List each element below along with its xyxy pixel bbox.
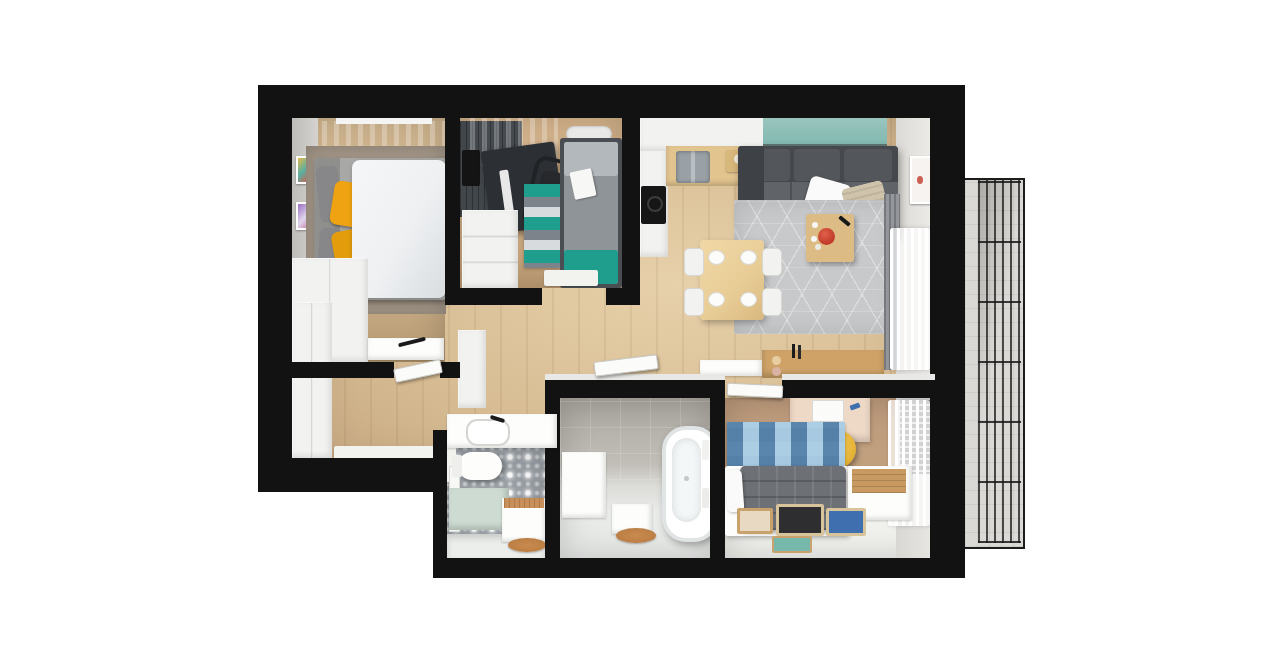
- wall-bath-top-left: [545, 378, 725, 398]
- plate-4: [740, 292, 757, 307]
- office-door-mat: [544, 270, 598, 286]
- wall-right: [930, 85, 965, 578]
- office-speaker: [462, 150, 480, 186]
- kids-white-pillow: [725, 469, 745, 512]
- hall-tall-cabinet: [458, 330, 486, 408]
- wood-round-mat: [616, 528, 656, 543]
- sideboard-decor-reeds: [792, 344, 795, 358]
- wall-bedroom-bottom-stub: [440, 362, 460, 378]
- living-sheer-curtain: [890, 228, 930, 370]
- wall-hall-bottom: [258, 458, 447, 492]
- office-dresser: [462, 210, 518, 288]
- hall-wardrobe: [292, 302, 332, 458]
- wall-bath-top-right: [782, 378, 935, 398]
- wall-top: [258, 85, 965, 118]
- wall-left: [258, 85, 292, 492]
- wall-cap-bath-right: [782, 374, 935, 380]
- dining-chair-1: [684, 248, 704, 276]
- dining-chair-4: [762, 288, 782, 316]
- teal-glass-panel: [763, 115, 887, 150]
- red-bowl: [818, 228, 835, 245]
- laptop: [812, 400, 844, 422]
- plate-2: [740, 250, 757, 265]
- wc-vanity-sink: [466, 419, 510, 446]
- toilet-tank: [452, 455, 462, 477]
- wall-office-kitchen-divider: [622, 115, 640, 305]
- wall-bedroom-office-divider: [445, 115, 460, 305]
- toy-box-wood-inner: [852, 469, 906, 493]
- sofa-cushion-3: [844, 149, 892, 181]
- white-cups: [812, 222, 818, 228]
- wall-office-bottom-right: [606, 288, 640, 305]
- plate-3: [708, 292, 725, 307]
- wall-cap-bath-left: [545, 374, 725, 380]
- wood-lid-basket: [508, 538, 546, 552]
- wall-hung-toilet: [458, 452, 502, 480]
- picture-art-mark: [917, 176, 923, 184]
- play-mat-4: [772, 536, 812, 553]
- kitchen-sink: [676, 151, 710, 183]
- wall-bath-kids-divider: [710, 398, 725, 558]
- wall-bottom: [433, 558, 965, 578]
- wall-bedroom-bottom: [292, 362, 394, 378]
- mint-bench: [449, 488, 509, 530]
- cooktop-burner: [647, 196, 663, 212]
- office-runner-rug: [524, 184, 560, 268]
- play-mat-1: [737, 508, 773, 534]
- play-mat-3: [826, 508, 866, 536]
- dining-chair-2: [684, 288, 704, 316]
- floor-plan-canvas: [0, 0, 1280, 667]
- dining-chair-3: [762, 248, 782, 276]
- play-mat-2: [776, 504, 824, 536]
- washer-wood-top: [504, 498, 544, 508]
- wall-office-bottom-left: [445, 288, 542, 305]
- kids-bed-gingham-headboard: [727, 422, 845, 470]
- wall-wc-left: [433, 432, 447, 565]
- towel-1: [702, 440, 709, 460]
- plate-1: [708, 250, 725, 265]
- balcony-railing-grid: [978, 180, 1021, 543]
- bathroom-vanity: [562, 452, 606, 518]
- bathtub-drain: [684, 476, 689, 481]
- sideboard-bowls: [772, 356, 781, 365]
